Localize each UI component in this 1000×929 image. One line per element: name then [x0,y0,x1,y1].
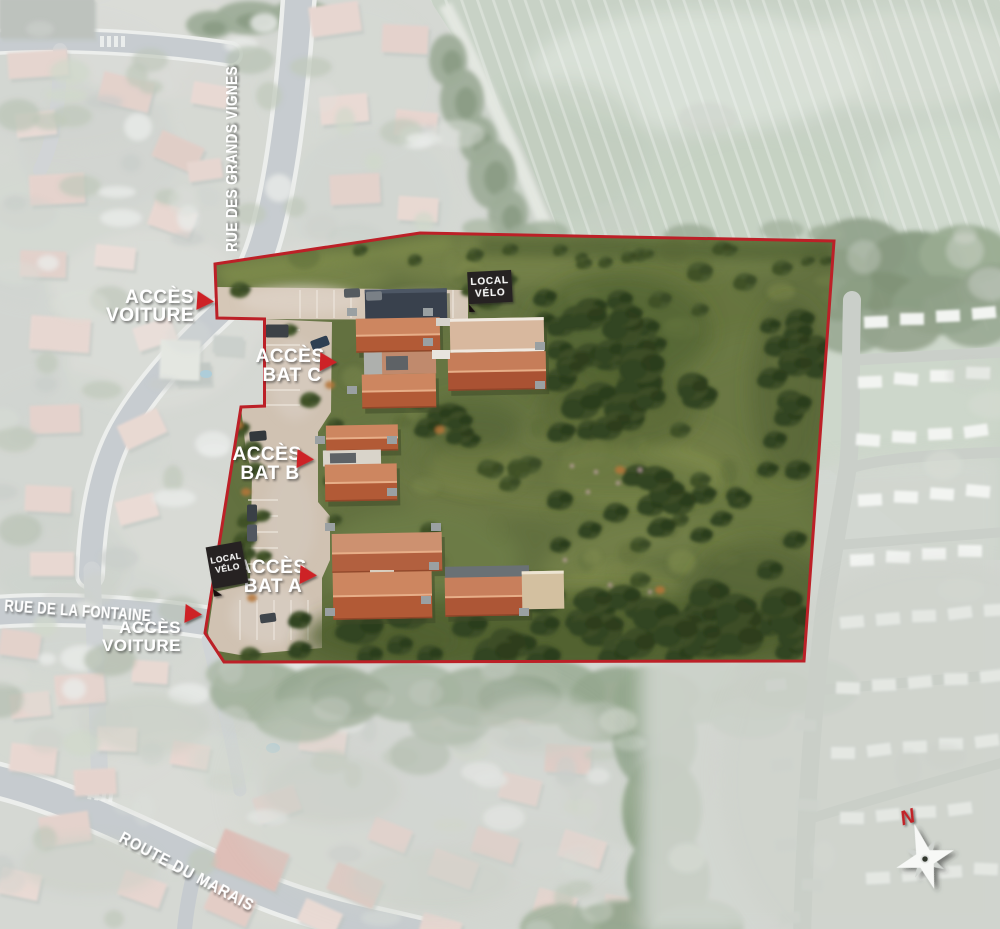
svg-text:BAT B: BAT B [240,463,299,484]
svg-text:ACCÈS: ACCÈS [119,618,181,637]
svg-text:ACCÈS: ACCÈS [232,443,301,465]
svg-text:RUE DES GRANDS VIGNES: RUE DES GRANDS VIGNES [224,66,241,252]
svg-text:VOITURE: VOITURE [106,305,194,326]
svg-text:ACCÈS: ACCÈS [255,345,324,367]
svg-text:BAT C: BAT C [262,365,321,386]
svg-text:VOITURE: VOITURE [102,636,181,655]
svg-text:BAT A: BAT A [244,576,302,597]
svg-text:LOCAL: LOCAL [470,275,509,288]
svg-text:ACCÈS: ACCÈS [237,556,306,578]
